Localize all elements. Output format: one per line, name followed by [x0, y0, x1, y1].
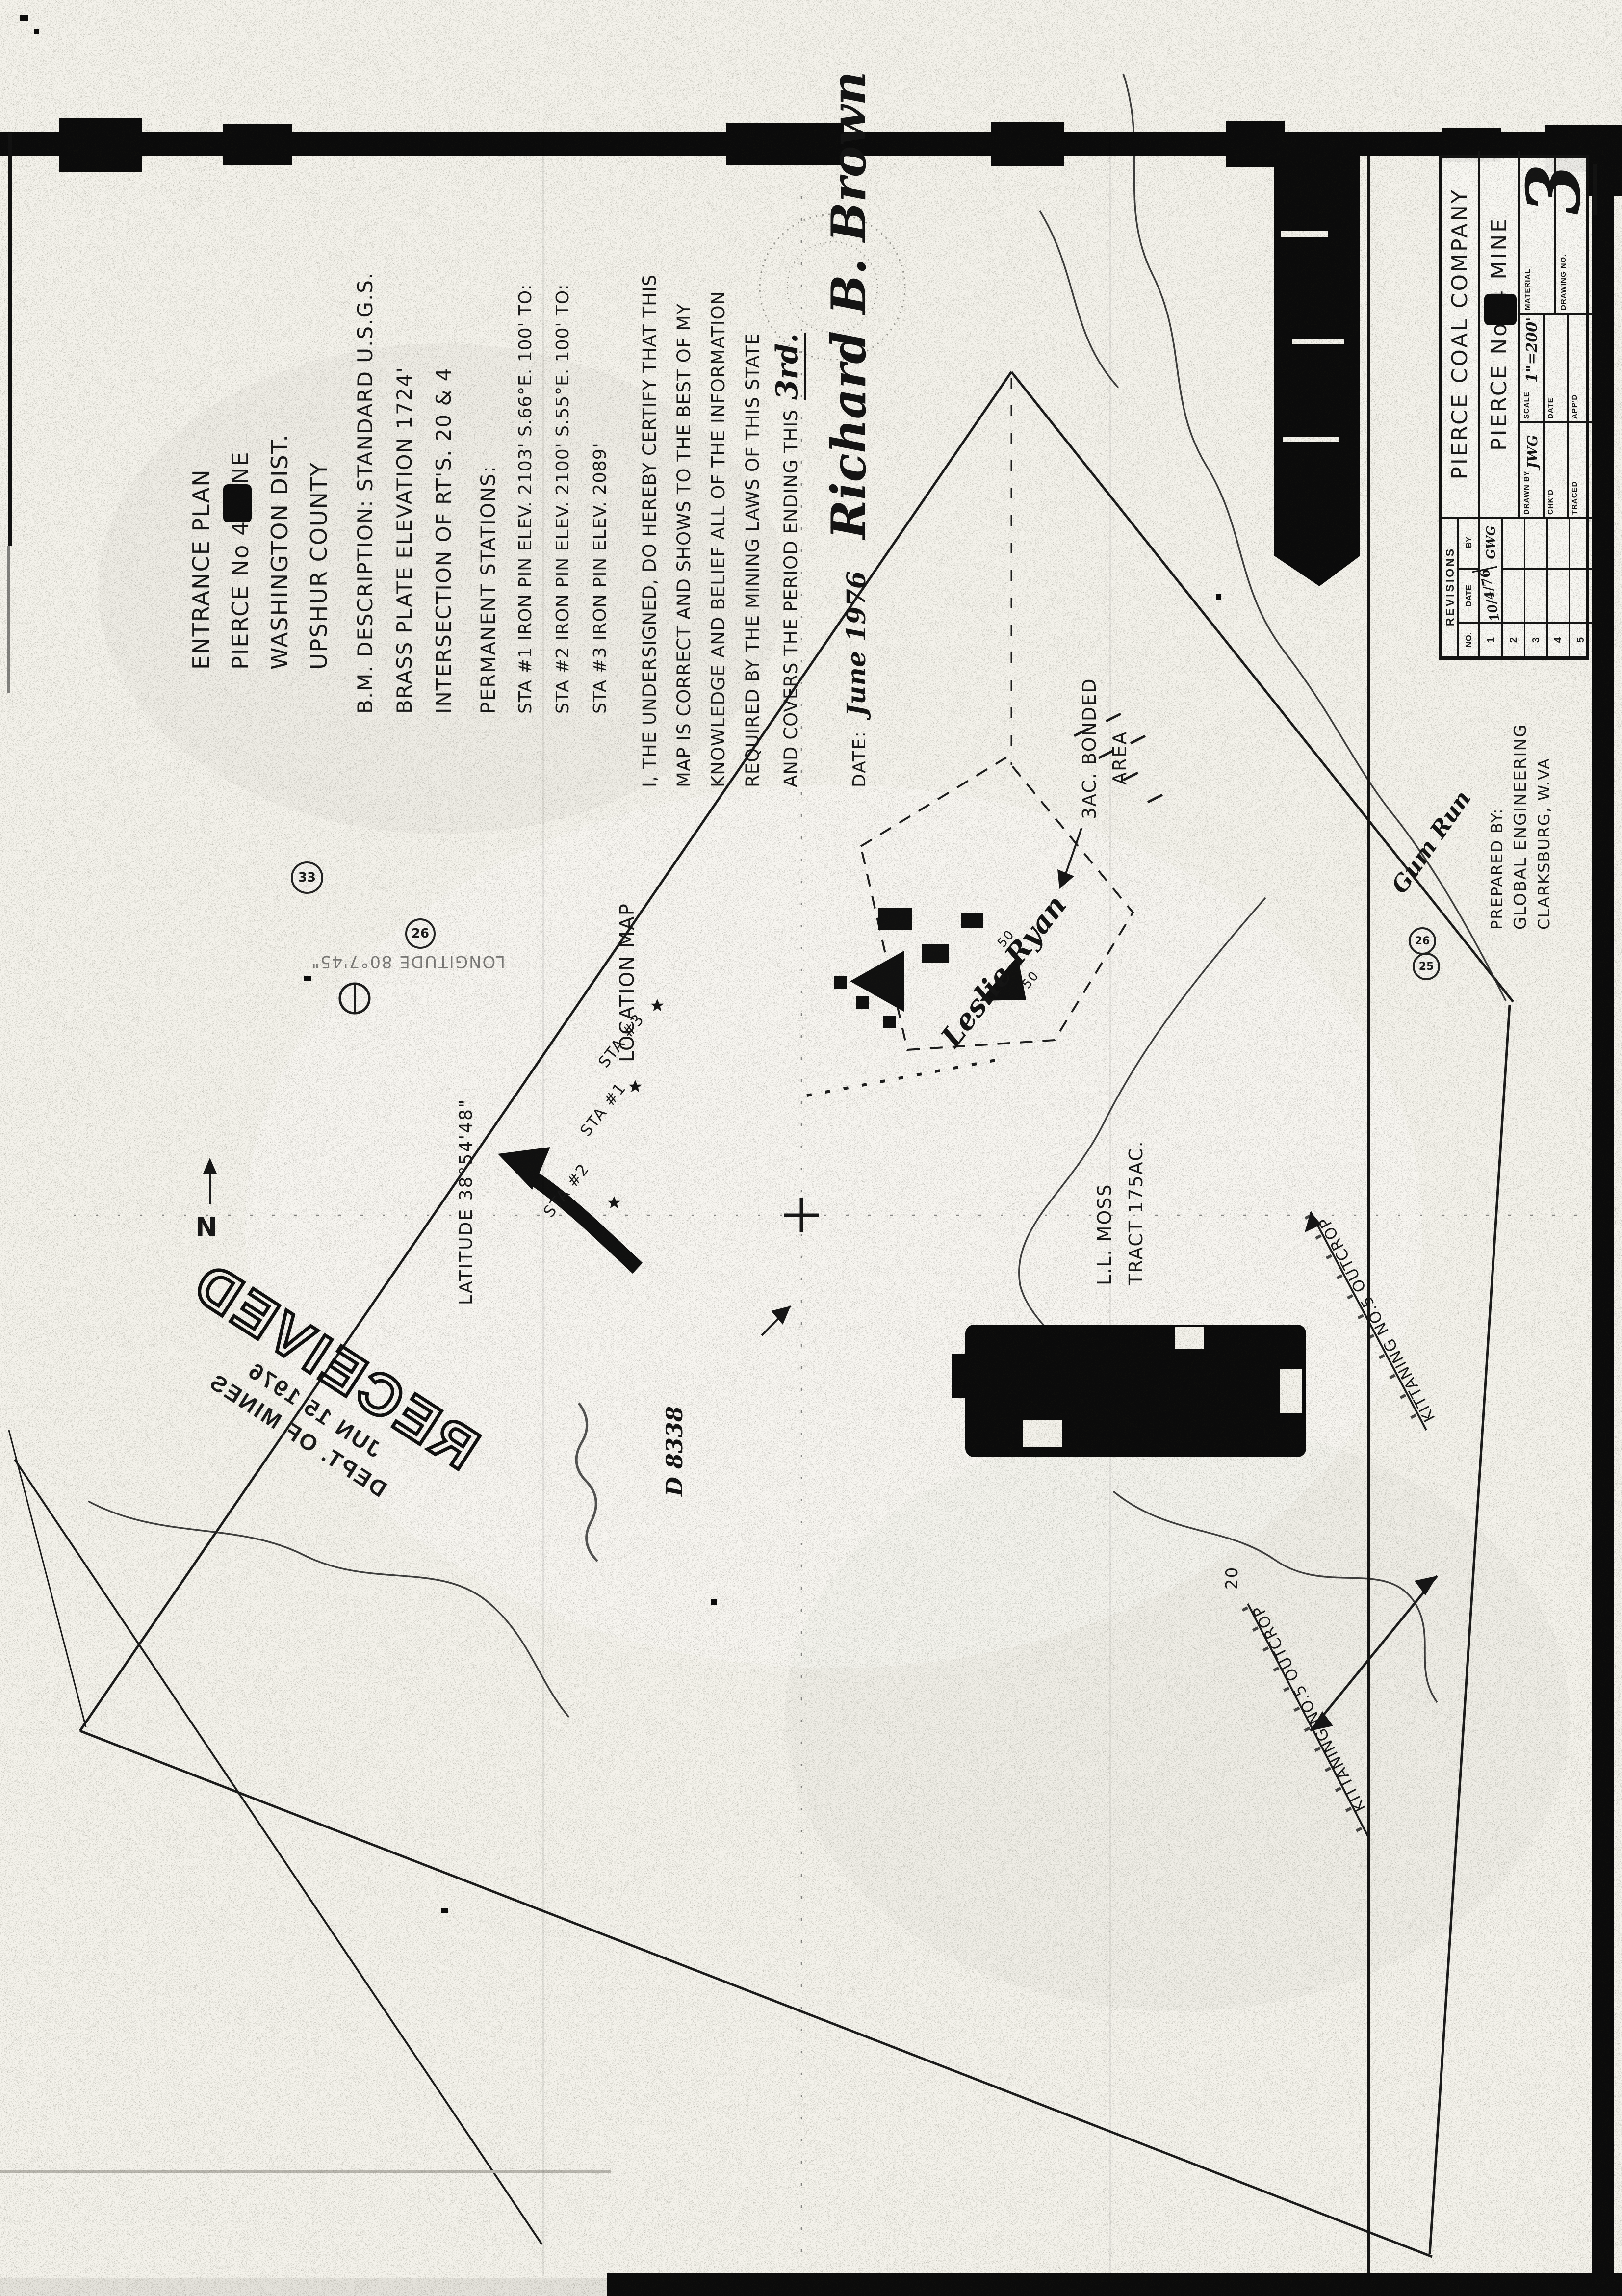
revision-row: 5 [1570, 517, 1593, 656]
material-label: MATERIAL [1523, 269, 1532, 310]
stations-line: PERMANENT STATIONS: [470, 209, 507, 714]
bm-line: B.M. DESCRIPTION: STANDARD U.S.G.S. [346, 248, 385, 714]
bonded-area-label: 3AC. BONDED AREA [1074, 678, 1135, 819]
plan-title-line: ENTRANCE PLAN [181, 375, 221, 670]
fields-group-left: DRAWN BY JWG CHK'D TRACED [1520, 421, 1593, 517]
plan-title-block: ENTRANCE PLAN PIERCE No 4 MINE WASHINGTO… [181, 375, 338, 670]
plan-title-line: UPSHUR COUNTY [299, 375, 338, 670]
drawing-no-value: 3 [1516, 164, 1597, 215]
revision-no: 2 [1503, 622, 1525, 656]
revisions-header: REVISIONS [1442, 517, 1459, 656]
drawn-by-cell: DRAWN BY JWG [1520, 421, 1545, 517]
date-cell: DATE [1545, 313, 1569, 421]
permanent-stations-block: PERMANENT STATIONS: STA #1 IRON PIN ELEV… [470, 209, 619, 714]
revisions-col-no: NO. [1459, 622, 1480, 656]
scale-value: 1"=200' [1523, 317, 1541, 383]
parcel-number: 33 [298, 870, 316, 885]
benchmark-description-block: B.M. DESCRIPTION: STANDARD U.S.G.S. BRAS… [346, 248, 463, 714]
revision-no: 1 [1480, 622, 1503, 656]
parcel-number: 26 [412, 926, 429, 941]
title-block: REVISIONS NO. DATE BY 1 10/4/76 GWG 2 3 [1439, 155, 1589, 660]
drawn-by-value: JWG [1524, 435, 1541, 469]
bm-line: INTERSECTION OF RT'S. 20 & 4 [424, 248, 463, 714]
revision-date [1570, 568, 1593, 622]
cert-date-label: DATE: [850, 731, 870, 787]
mine-name: PIERCE No. 4 MINE [1487, 217, 1512, 451]
fields-group-middle: SCALE 1"=200' DATE APP'D [1520, 313, 1593, 421]
revision-by: GWG [1480, 517, 1503, 568]
cert-line: I, THE UNDERSIGNED, DO HEREBY CERTIFY TH… [633, 228, 667, 787]
moss-tract-line: TRACT 175AC. [1120, 1140, 1152, 1285]
parcel-number: 26 [1415, 935, 1430, 947]
drawing-id-handwritten: D 8338 [661, 1406, 688, 1496]
prepared-by-city: CLARKSBURG, W.VA [1532, 684, 1556, 930]
parcel-number-badge: 33 [291, 861, 323, 894]
prepared-by-block: PREPARED BY: GLOBAL ENGINEERING CLARKSBU… [1485, 684, 1556, 930]
ink-blob [223, 484, 252, 522]
revision-date [1548, 568, 1570, 622]
chkd-label: CHK'D [1546, 489, 1555, 515]
bonded-area-line: AREA [1105, 678, 1135, 785]
scanned-mine-map-sheet: ENTRANCE PLAN PIERCE No 4 MINE WASHINGTO… [0, 0, 1622, 2296]
traced-label: TRACED [1571, 481, 1579, 515]
longitude-label: LONGITUDE 80°7'45" [289, 952, 505, 971]
parcel-number-badge: 26 [405, 918, 436, 949]
appd-cell: APP'D [1569, 313, 1593, 421]
revision-no: 5 [1570, 622, 1593, 656]
scale-cell: SCALE 1"=200' [1520, 313, 1545, 421]
date-label: DATE [1546, 397, 1555, 419]
cert-line: REQUIRED BY THE MINING LAWS OF THIS STAT… [736, 228, 770, 787]
cert-line: KNOWLEDGE AND BELIEF ALL OF THE INFORMAT… [701, 228, 736, 787]
moss-tract-label: L.L. MOSS TRACT 175AC. [1089, 1140, 1152, 1285]
company-name-cell: PIERCE COAL COMPANY [1442, 151, 1480, 517]
revision-row: 4 [1548, 517, 1570, 656]
revision-no: 4 [1548, 622, 1570, 656]
stations-line: STA #1 IRON PIN ELEV. 2103' S.66°E. 100'… [507, 209, 544, 714]
parcel-number-badge: 25 [1413, 953, 1440, 980]
fields-group-right: MATERIAL DRAWING NO. 3 [1520, 157, 1593, 313]
revision-date [1503, 568, 1525, 622]
parcel-number: 25 [1419, 961, 1434, 973]
cert-line: AND COVERS THE PERIOD ENDING THIS [780, 409, 801, 787]
parcel-number-badge: 26 [1409, 927, 1436, 955]
certification-block: I, THE UNDERSIGNED, DO HEREBY CERTIFY TH… [633, 228, 876, 787]
chkd-cell: CHK'D [1545, 421, 1569, 517]
scale-label: SCALE [1522, 391, 1531, 419]
prepared-by-label: PREPARED BY: [1485, 684, 1509, 930]
cert-line: MAP IS CORRECT AND SHOWS TO THE BEST OF … [667, 228, 701, 787]
latitude-label: LATITUDE 38°54'48" [456, 1098, 476, 1305]
cert-date-value: June 1976 [842, 571, 872, 716]
revision-no: 3 [1525, 622, 1548, 656]
drawing-no-label: DRAWING NO. [1559, 254, 1568, 310]
plan-title-line: WASHINGTON DIST. [260, 375, 299, 670]
appd-label: APP'D [1571, 394, 1579, 419]
cert-ending-day: 3rd. [770, 333, 806, 400]
revisions-table: REVISIONS NO. DATE BY 1 10/4/76 GWG 2 3 [1442, 517, 1593, 656]
plan-title-line: PIERCE No 4 MINE [221, 375, 260, 670]
revision-row: 1 10/4/76 GWG [1480, 517, 1503, 656]
north-indicator: N [195, 1212, 218, 1243]
stations-line: STA #3 IRON PIN ELEV. 2089' [582, 209, 619, 714]
ink-blob [1484, 294, 1517, 325]
revision-date [1525, 568, 1548, 622]
signature: Richard B. Brown [821, 71, 876, 539]
revision-row: 3 [1525, 517, 1548, 656]
company-name: PIERCE COAL COMPANY [1447, 188, 1472, 479]
prepared-by-firm: GLOBAL ENGINEERING [1509, 684, 1532, 930]
elevation-number: 20 [1222, 1566, 1242, 1590]
revision-row: 2 [1503, 517, 1525, 656]
stations-line: STA #2 IRON PIN ELEV. 2100' S.55°E. 100'… [544, 209, 582, 714]
drawn-by-label: DRAWN BY [1522, 470, 1531, 515]
bonded-area-line: 3AC. BONDED [1074, 678, 1105, 819]
traced-cell: TRACED [1569, 421, 1593, 517]
moss-tract-line: L.L. MOSS [1089, 1140, 1120, 1285]
bm-line: BRASS PLATE ELEVATION 1724' [385, 248, 424, 714]
revisions-col-by: BY [1459, 517, 1480, 568]
